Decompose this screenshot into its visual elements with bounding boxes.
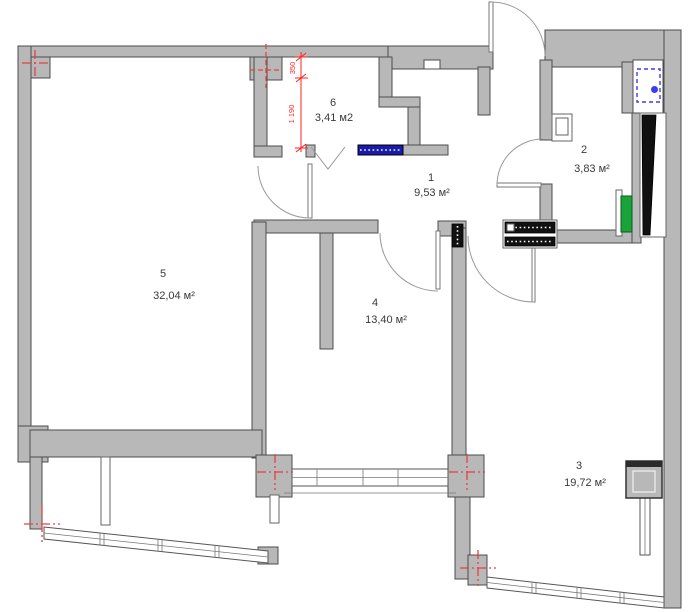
wall-room5-room4-divider [252,222,266,458]
room2-area: 3,83 м² [574,163,610,175]
outer-wall-top [18,46,390,57]
balcony-partition-mid [270,495,279,523]
room4-area: 13,40 м² [365,314,407,326]
wall-notch [424,60,440,69]
wall-niche-1 [379,57,392,103]
vent-shaft [640,113,666,237]
room5-door-leaf [308,164,312,218]
room6-folding-door [311,147,345,169]
dimension-value: 1 190 [287,105,296,124]
room4-door-arc [380,233,438,291]
balcony-glazing-right [487,577,664,608]
window-pier-right [448,455,484,497]
room1-area: 9,53 м² [414,187,450,199]
wall-niche-strip [622,62,633,113]
entrance-door-leaf [489,2,493,52]
wall-room4-stub [320,233,333,349]
washing-machine-drum [651,86,658,93]
room6-area: 3,41 м2 [315,112,353,124]
wall-room2-left-upper [540,60,552,140]
wall-niche-2 [379,97,420,107]
entrance-door-arc [491,2,545,56]
wall-hall-bottom [254,220,378,233]
dimension-value: 350 [288,62,297,75]
outer-wall-left-lower [30,457,42,529]
room2-door-leaf [497,183,541,187]
room1-number: 1 [428,172,434,184]
dimension-line: 350 1 190 [287,52,308,152]
wall-room5-bottom [30,430,262,457]
wall-room6-stub [254,146,282,157]
room2-number: 2 [581,144,587,156]
room4-number: 4 [372,297,378,309]
room2-door-arc [497,139,543,185]
wall-niche-4 [403,145,448,155]
room5-area: 32,04 м² [153,290,195,302]
wall-niche-3 [408,107,420,147]
wall-vestibule [478,67,490,115]
column-top-left [31,57,50,78]
vent-duct-small [452,224,463,247]
lintel-bar [358,145,403,155]
vent-duct [503,220,557,248]
room6-number: 6 [330,97,336,109]
floor-plan-drawing: 350 1 190 6 3,41 м2 1 9,53 м² 2 3,83 м² … [0,0,700,612]
wall-room4-room3-divider [452,228,466,458]
wall-room6-left [254,57,267,149]
room5-number: 5 [160,268,166,280]
room3-number: 3 [576,460,582,472]
vent-block-room3 [626,461,662,498]
window-pier-left [256,455,292,497]
floor-plan: 350 1 190 6 3,41 м2 1 9,53 м² 2 3,83 м² … [0,0,700,612]
room4-door-leaf [436,231,440,289]
sink-fixture [552,114,572,141]
balcony-partition-left [101,457,110,525]
balcony-glazing-left [44,527,268,563]
radiator [621,196,632,232]
room5-door-arc [258,166,310,218]
fixtures [358,69,666,498]
room3-area: 19,72 м² [564,477,606,489]
outer-wall-left [18,46,31,428]
outer-wall-right [664,30,681,608]
